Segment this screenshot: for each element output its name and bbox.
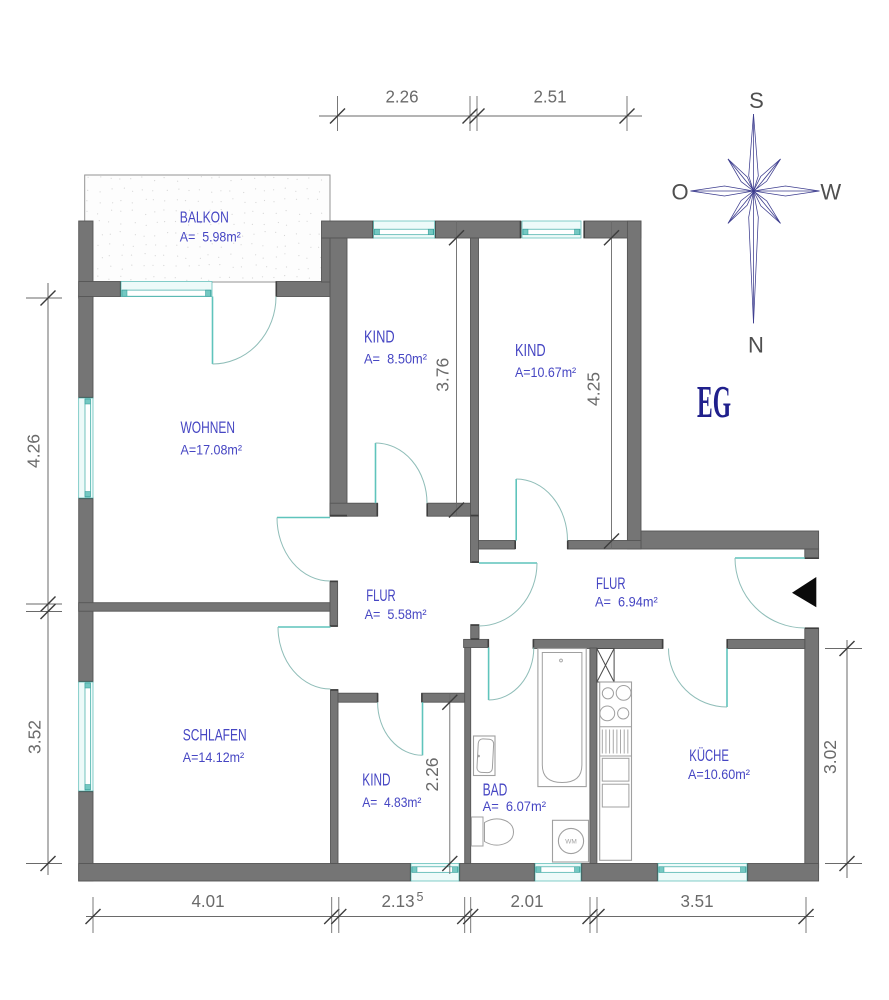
svg-text:2.51: 2.51 [534, 87, 567, 107]
svg-text:A=10.60m²: A=10.60m² [688, 767, 750, 782]
svg-text:3.52: 3.52 [25, 720, 45, 754]
svg-text:N: N [748, 332, 764, 357]
svg-text:4.26: 4.26 [24, 434, 44, 468]
svg-text:2.26: 2.26 [386, 87, 419, 107]
svg-text:WOHNEN: WOHNEN [181, 419, 236, 437]
svg-text:W: W [820, 180, 841, 205]
svg-text:5: 5 [417, 890, 424, 904]
svg-text:KIND: KIND [362, 770, 390, 790]
svg-text:FLUR: FLUR [596, 575, 626, 593]
svg-text:EG: EG [697, 377, 731, 427]
svg-text:A=14.12m²: A=14.12m² [183, 750, 245, 765]
svg-text:S: S [749, 88, 764, 113]
svg-text:BALKON: BALKON [180, 210, 229, 227]
svg-text:4.25: 4.25 [584, 372, 604, 406]
svg-text:A= 6.94m²: A= 6.94m² [595, 595, 658, 610]
svg-text:4.01: 4.01 [192, 891, 225, 911]
svg-text:A= 4.83m²: A= 4.83m² [362, 795, 421, 810]
svg-text:3.76: 3.76 [433, 358, 453, 392]
svg-text:A=17.08m²: A=17.08m² [181, 443, 243, 458]
svg-text:A=10.67m²: A=10.67m² [515, 365, 577, 380]
svg-text:A= 8.50m²: A= 8.50m² [364, 352, 427, 367]
svg-text:BAD: BAD [483, 780, 508, 800]
svg-text:3.51: 3.51 [681, 891, 714, 911]
svg-text:SCHLAFEN: SCHLAFEN [183, 727, 247, 745]
svg-text:A= 5.58m²: A= 5.58m² [365, 607, 427, 622]
svg-text:A= 6.07m²: A= 6.07m² [483, 799, 547, 814]
svg-text:2.26: 2.26 [422, 758, 442, 792]
svg-text:2.13: 2.13 [382, 891, 415, 911]
svg-text:O: O [671, 180, 688, 205]
svg-text:KIND: KIND [364, 327, 395, 347]
svg-text:2.01: 2.01 [511, 891, 544, 911]
svg-text:KIND: KIND [515, 340, 546, 360]
svg-text:3.02: 3.02 [820, 740, 840, 774]
svg-text:FLUR: FLUR [366, 587, 396, 605]
svg-text:A= 5.98m²: A= 5.98m² [180, 229, 241, 244]
svg-text:KÜCHE: KÜCHE [689, 747, 729, 765]
svg-text:WM: WM [565, 839, 577, 846]
